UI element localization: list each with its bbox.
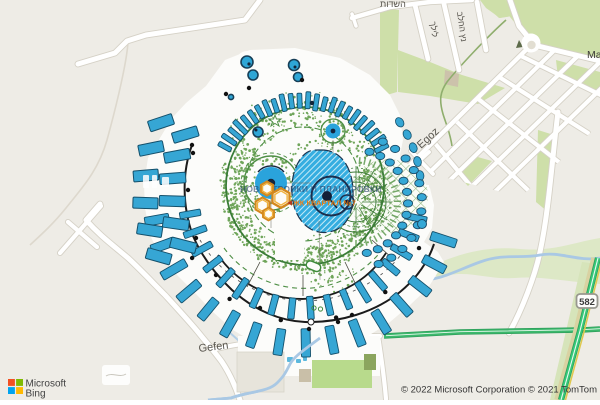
svg-text:© 2022 Microsoft Corporation ©: © 2022 Microsoft Corporation © 2021 TomT… bbox=[401, 385, 597, 396]
svg-text:השדות: השדות bbox=[380, 0, 406, 9]
svg-text:ЖК КВАРТАЛ №7: ЖК КВАРТАЛ №7 bbox=[292, 199, 356, 208]
svg-text:Ma: Ma bbox=[587, 49, 600, 61]
svg-text:Bing: Bing bbox=[26, 389, 46, 400]
svg-text:582: 582 bbox=[579, 297, 595, 308]
